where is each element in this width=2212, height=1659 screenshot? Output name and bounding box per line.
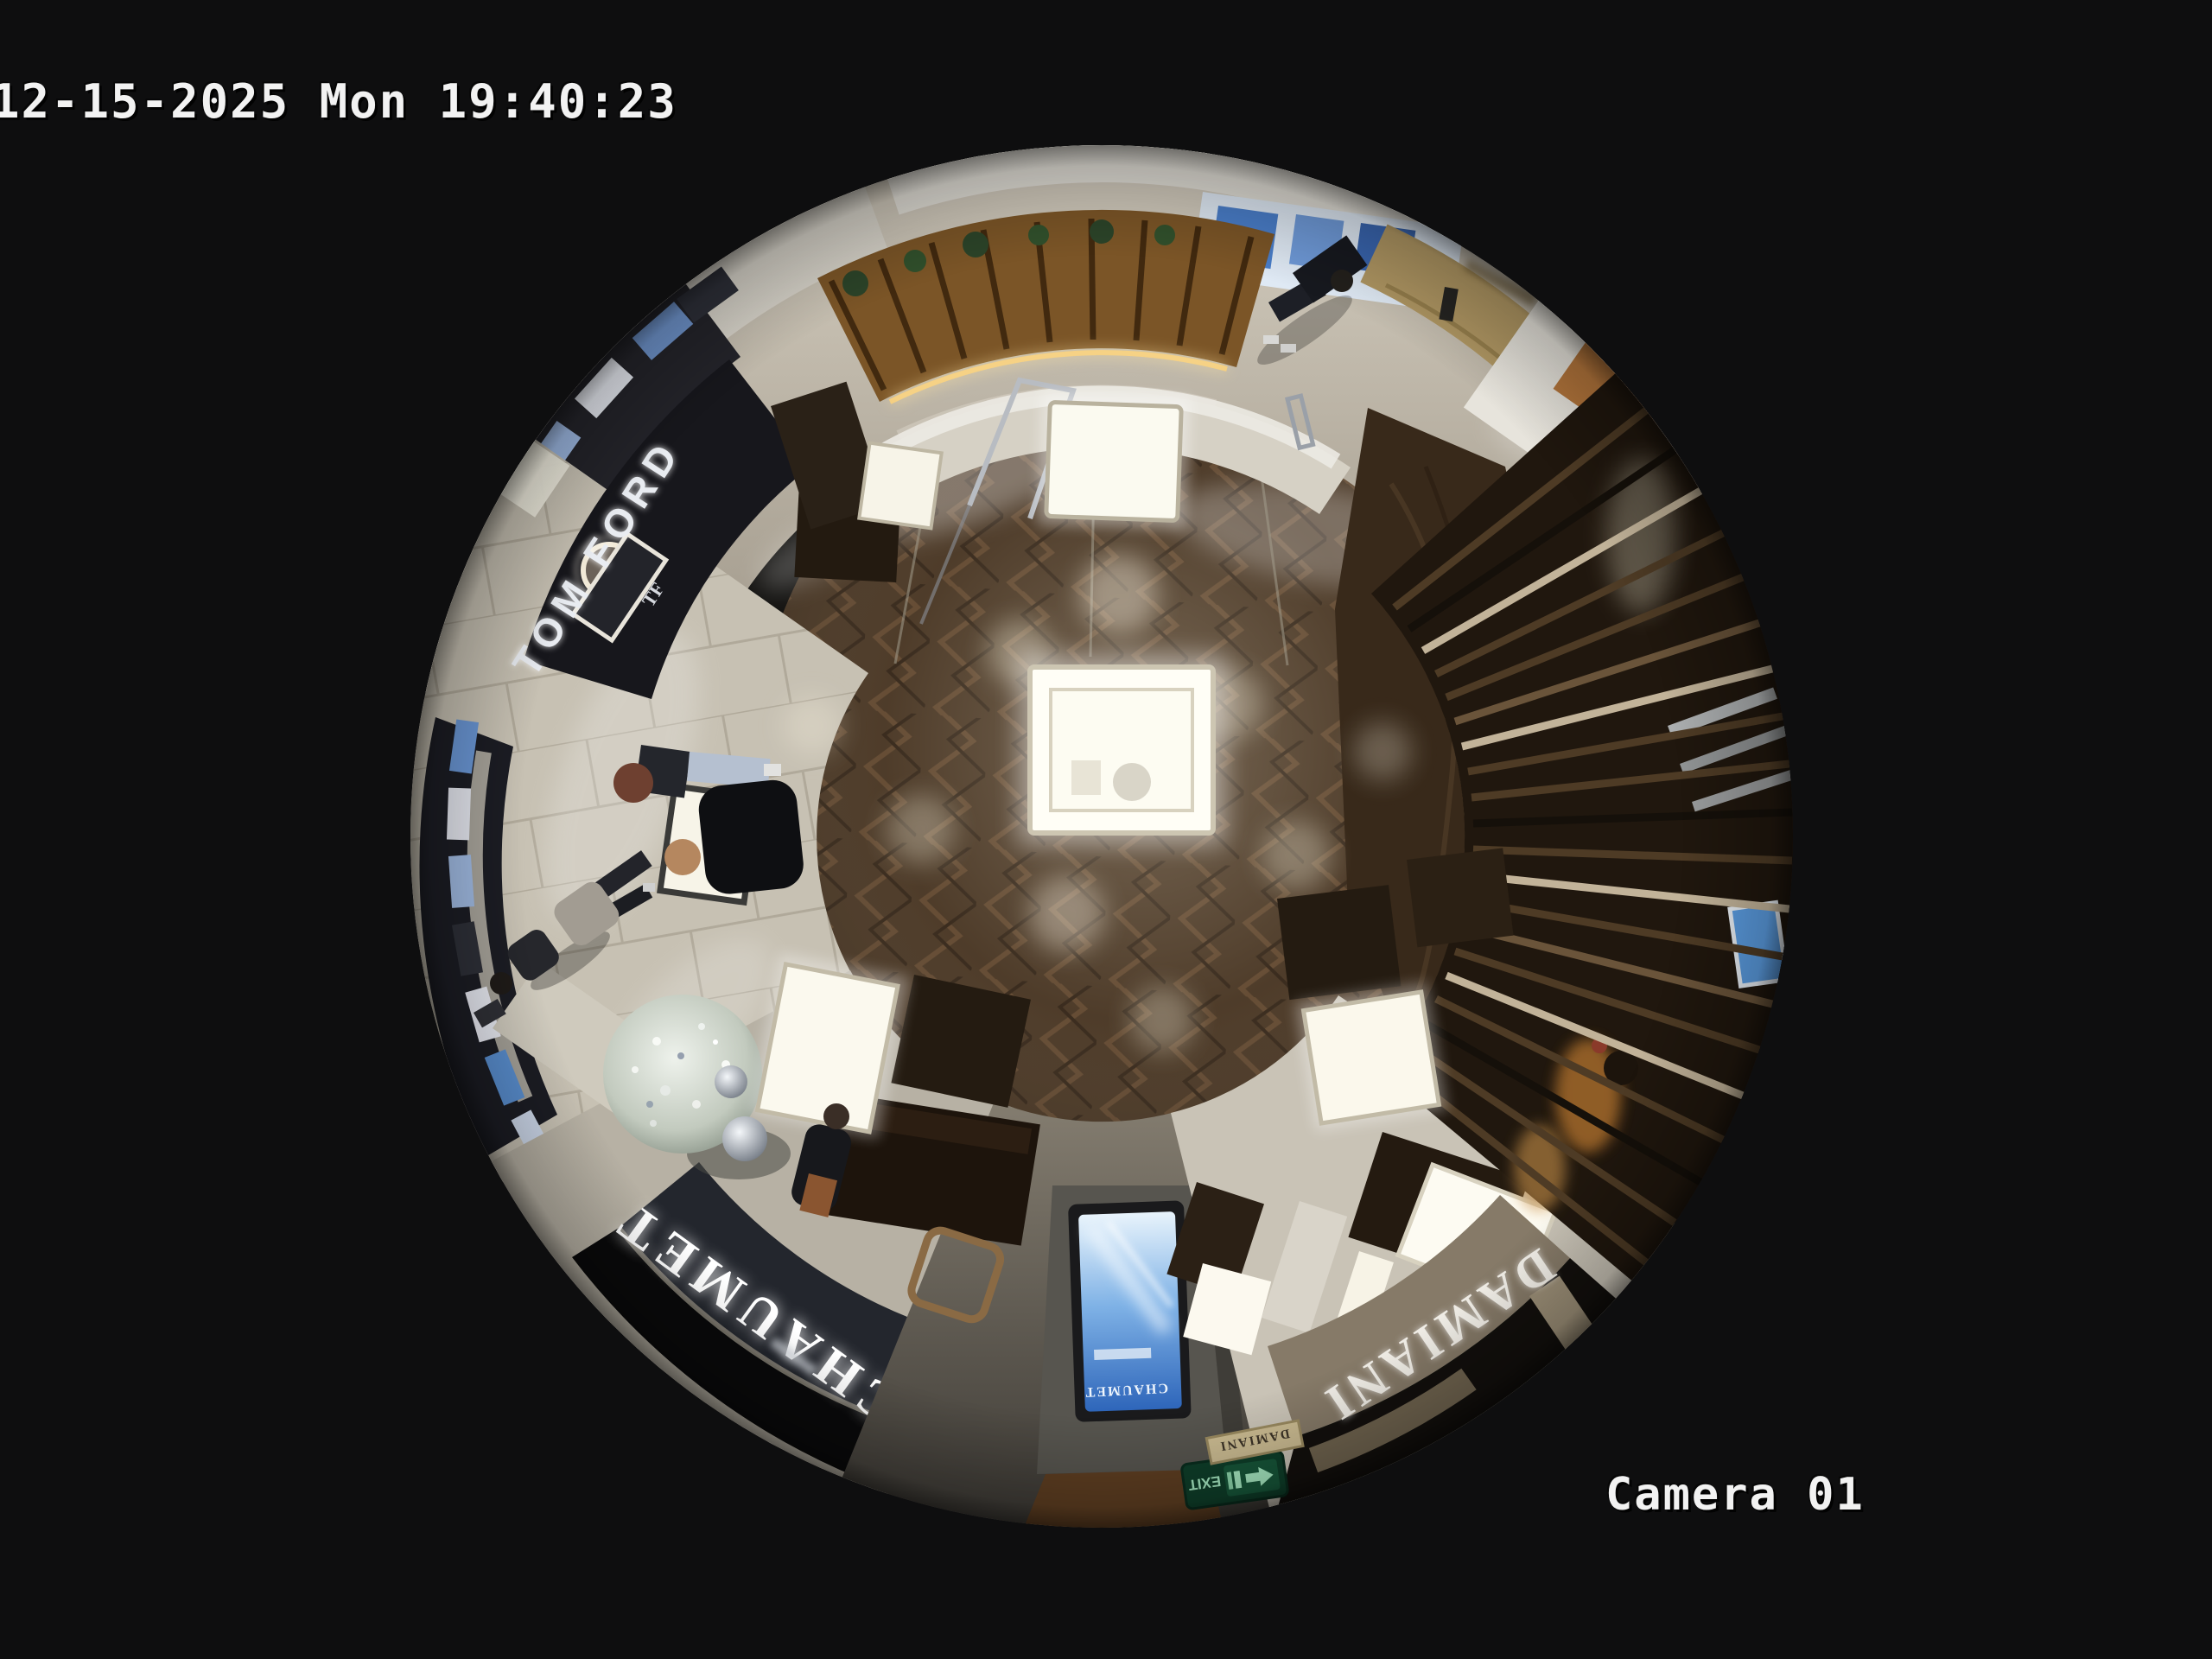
fisheye-view: TF TOM FORD TOM FORD CHAUMET CHAUMET	[0, 0, 2212, 1659]
cctv-frame: TF TOM FORD TOM FORD CHAUMET CHAUMET	[0, 0, 2212, 1659]
lens-vignette	[410, 145, 1793, 1528]
camera-label-overlay: Camera 01	[1605, 1469, 1865, 1521]
timestamp-overlay: 12-15-2025 Mon 19:40:23	[0, 74, 677, 129]
